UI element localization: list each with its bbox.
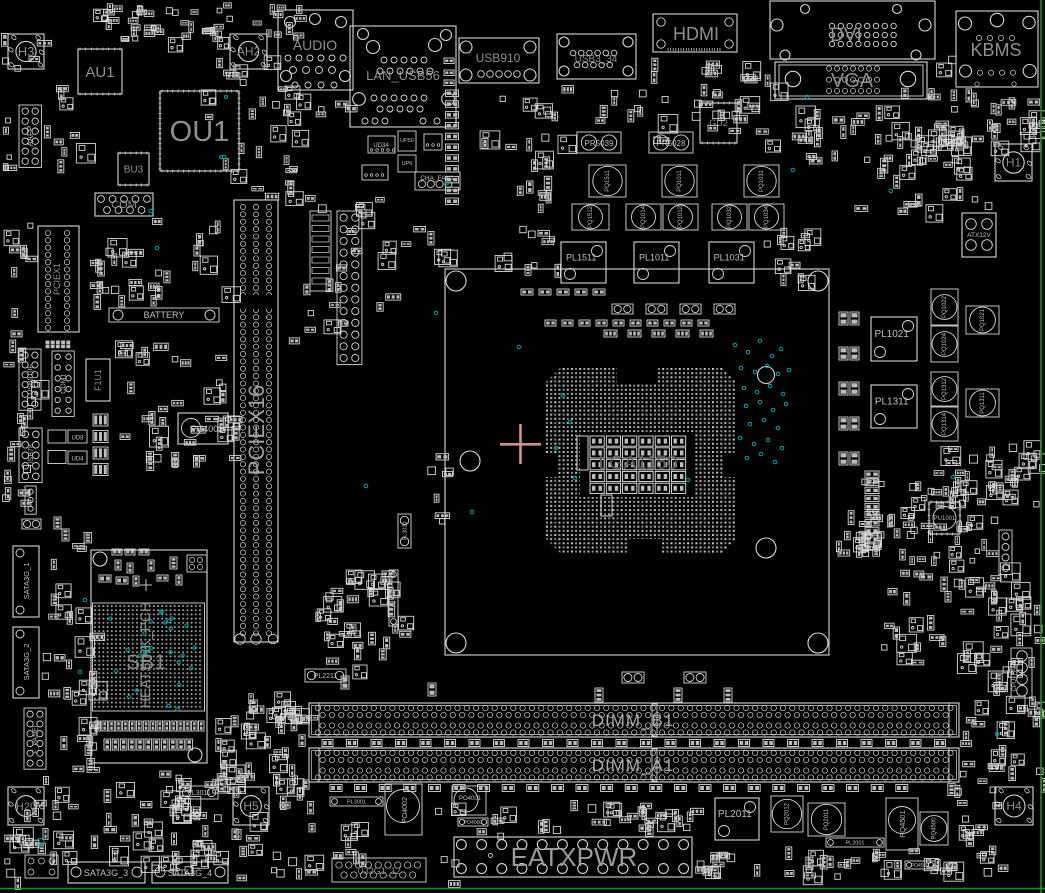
svg-text:UP50: UP50 xyxy=(400,138,414,144)
svg-text:KBMS: KBMS xyxy=(970,40,1021,60)
svg-text:PQ1512: PQ1512 xyxy=(588,205,594,228)
svg-text:UD34: UD34 xyxy=(373,143,389,149)
svg-text:PQ1312: PQ1312 xyxy=(942,377,948,400)
svg-text:UD4: UD4 xyxy=(71,457,84,463)
svg-text:H4: H4 xyxy=(1006,799,1022,813)
svg-text:PO4002: PO4002 xyxy=(402,797,409,823)
svg-text:PL1311: PL1311 xyxy=(875,396,909,407)
svg-text:PQ1314: PQ1314 xyxy=(942,412,948,435)
svg-text:PL3020: PL3020 xyxy=(402,522,408,541)
svg-text:PO4000: PO4000 xyxy=(464,820,483,826)
svg-text:ATX12V: ATX12V xyxy=(967,232,991,239)
svg-text:U32G1_12: U32G1_12 xyxy=(357,866,401,876)
svg-text:USB910F: USB910F xyxy=(28,364,35,394)
svg-text:PQ2011: PQ2011 xyxy=(824,808,830,830)
svg-text:AU1: AU1 xyxy=(85,64,114,81)
svg-text:PL2011: PL2011 xyxy=(718,809,752,820)
svg-text:SATA3G_2: SATA3G_2 xyxy=(22,644,31,681)
svg-text:PCIEX1: PCIEX1 xyxy=(52,263,62,295)
svg-text:AH2: AH2 xyxy=(237,45,261,59)
svg-text:PQ1021: PQ1021 xyxy=(980,308,986,331)
svg-text:PL1011: PL1011 xyxy=(639,252,669,262)
svg-text:BU3: BU3 xyxy=(124,165,144,176)
svg-text:H1: H1 xyxy=(1006,156,1022,170)
svg-text:PU4001: PU4001 xyxy=(191,424,224,434)
svg-text:F_PANEL: F_PANEL xyxy=(33,723,40,754)
svg-text:PO4001: PO4001 xyxy=(459,796,482,802)
svg-text:PL1021: PL1021 xyxy=(874,329,909,340)
svg-text:PL1511: PL1511 xyxy=(566,252,596,262)
svg-text:PL1031: PL1031 xyxy=(714,252,745,262)
svg-text:PQ1012: PQ1012 xyxy=(678,205,684,228)
svg-text:F1U1: F1U1 xyxy=(93,369,103,391)
svg-text:DIMM_B1: DIMM_B1 xyxy=(592,711,675,730)
svg-text:DVI: DVI xyxy=(830,25,862,46)
svg-text:COM1: COM1 xyxy=(61,373,68,393)
svg-text:H5: H5 xyxy=(243,799,259,813)
svg-text:USB78: USB78 xyxy=(28,444,35,466)
svg-text:PQ1311: PQ1311 xyxy=(980,392,986,414)
svg-text:VGA: VGA xyxy=(831,70,874,92)
svg-text:PQ4500: PQ4500 xyxy=(932,817,938,840)
svg-text:PQ1511: PQ1511 xyxy=(605,170,611,192)
svg-text:PL2001: PL2001 xyxy=(846,840,865,846)
svg-text:HDMI: HDMI xyxy=(673,24,719,44)
svg-text:COM: COM xyxy=(111,199,137,211)
svg-text:LAN_USB56: LAN_USB56 xyxy=(366,68,440,83)
svg-text:PR5039: PR5039 xyxy=(585,139,614,148)
svg-text:SATA3G_3: SATA3G_3 xyxy=(84,868,128,878)
svg-text:PQ1032: PQ1032 xyxy=(727,205,733,228)
svg-text:EATXPWR: EATXPWR xyxy=(511,842,638,872)
svg-text:HEATSINK_PCH: HEATSINK_PCH xyxy=(137,602,153,708)
svg-text:PQ1014: PQ1014 xyxy=(641,205,647,228)
svg-text:PL3001: PL3001 xyxy=(347,799,366,805)
svg-text:OU1: OU1 xyxy=(170,116,230,148)
svg-text:PQ1024: PQ1024 xyxy=(942,332,948,355)
svg-text:USB910: USB910 xyxy=(476,51,521,65)
svg-text:PQ1034: PQ1034 xyxy=(764,205,770,228)
svg-text:LGA1150: LGA1150 xyxy=(599,453,678,474)
svg-text:PL2211: PL2211 xyxy=(314,673,338,680)
svg-text:UD8: UD8 xyxy=(71,436,84,442)
svg-text:AUDIO: AUDIO xyxy=(293,37,337,53)
svg-text:AAFP: AAFP xyxy=(26,126,35,147)
svg-text:SATA3G_1: SATA3G_1 xyxy=(22,563,31,600)
svg-text:PQ1031: PQ1031 xyxy=(759,169,765,192)
svg-text:PQ1011: PQ1011 xyxy=(677,170,683,192)
svg-text:UP6: UP6 xyxy=(402,161,413,167)
svg-text:PQ1022: PQ1022 xyxy=(942,295,948,318)
svg-text:PQ4501: PQ4501 xyxy=(898,810,907,838)
svg-text:USB3_34: USB3_34 xyxy=(575,54,618,65)
svg-text:BATTERY: BATTERY xyxy=(144,310,185,320)
svg-text:PQ2012: PQ2012 xyxy=(785,802,791,825)
svg-text:PU1001: PU1001 xyxy=(934,516,956,522)
svg-text:DIMM_A1: DIMM_A1 xyxy=(592,756,675,775)
svg-text:PCIEX16: PCIEX16 xyxy=(244,385,269,476)
